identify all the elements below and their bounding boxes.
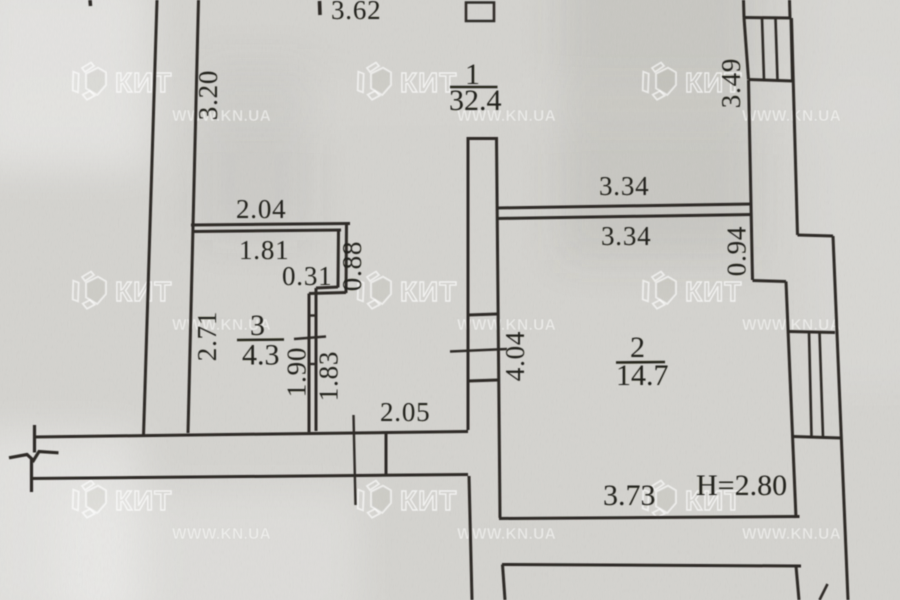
svg-text:2.04: 2.04	[236, 194, 286, 224]
svg-text:H=2.80: H=2.80	[696, 469, 787, 502]
svg-text:3.20: 3.20	[193, 70, 223, 120]
svg-text:0.88: 0.88	[337, 241, 367, 291]
svg-text:14.7: 14.7	[616, 359, 669, 392]
svg-text:32.4: 32.4	[449, 84, 502, 117]
svg-text:3.34: 3.34	[599, 171, 649, 201]
svg-text:0.94: 0.94	[722, 226, 752, 276]
svg-text:3.34: 3.34	[601, 221, 651, 251]
svg-text:0.31: 0.31	[282, 261, 332, 291]
svg-text:1.83: 1.83	[314, 351, 344, 401]
svg-text:3.73: 3.73	[603, 479, 656, 512]
svg-text:2.05: 2.05	[380, 397, 430, 427]
svg-text:3.62: 3.62	[331, 0, 381, 25]
svg-text:4.04: 4.04	[500, 331, 530, 381]
svg-text:4.3: 4.3	[242, 339, 280, 372]
svg-text:2.71: 2.71	[192, 311, 222, 361]
svg-text:3: 3	[250, 309, 265, 342]
svg-text:3.49: 3.49	[716, 58, 746, 108]
svg-text:1.90: 1.90	[282, 347, 312, 397]
